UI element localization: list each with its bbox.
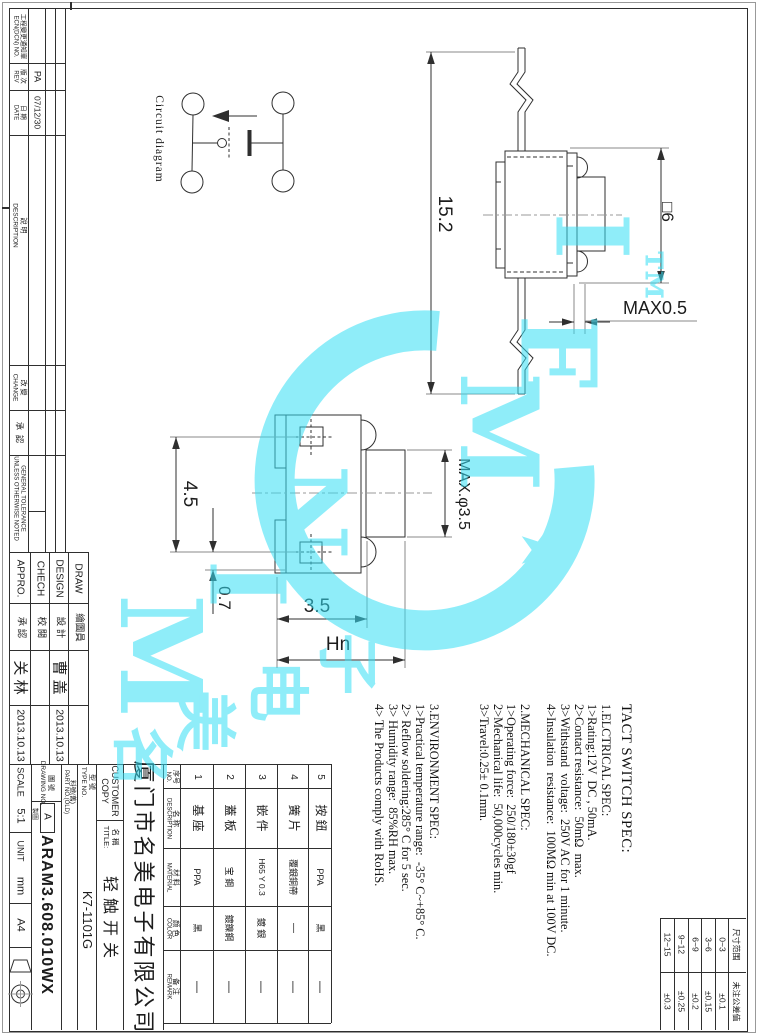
- part-no: 5: [305, 767, 335, 787]
- part-name: 蓋 板: [214, 790, 244, 846]
- dim-edge: 0.7: [214, 575, 234, 621]
- parts-header-name: 名 称 DESCRIPTION: [163, 788, 180, 848]
- spec-line: 4> The Products comply with RoHS.: [371, 704, 385, 1020]
- dim-side-width: □6: [656, 190, 678, 234]
- design-label-cn: 設 計: [49, 602, 68, 652]
- unit-value: mm: [11, 869, 31, 904]
- part-remark: —: [305, 953, 335, 1021]
- chech-label: CHECH: [30, 553, 49, 603]
- description-label: 說 明 DESCRIPTION: [11, 165, 28, 285]
- spec-line: 2.MECHANICAL SPEC:: [517, 704, 531, 1020]
- spec-line: 2> Reflow soldering:285° C for 5 sec.: [399, 704, 413, 1020]
- part-remark: —: [214, 953, 244, 1021]
- part-material: PPA: [182, 850, 212, 904]
- part-remark: —: [182, 953, 212, 1021]
- spec-line: 3.ENVIRONMENT SPEC:: [426, 704, 440, 1020]
- rev-label: 版 次 REV: [11, 64, 28, 90]
- approve-strip-label: 承 認: [11, 411, 28, 455]
- design-date: 2013.10.13: [49, 706, 68, 764]
- tol-value: ±0.2: [689, 976, 700, 1026]
- dim-stem: MAX.φ3.5: [453, 442, 473, 546]
- projection-symbol-icon: [8, 960, 33, 1007]
- dim-side-height: 15.2: [432, 184, 456, 244]
- part-name: 嵌 件: [246, 790, 276, 846]
- sheet-size: A4: [11, 908, 31, 943]
- drawing-sheet: Circuit diagram 15.2 □6 MAX0.5 4.5 0.7 3…: [0, 0, 758, 1034]
- spec-line: 3>Travel:0.25± 0.1mm.: [476, 704, 490, 1020]
- tol-value: ±0.15: [703, 976, 714, 1026]
- general-tolerance-note: GENERAL TOLERANCE UNLESS OTHERWISE NOTED: [11, 452, 28, 544]
- appro-name: 关 林: [11, 653, 30, 703]
- tol-range: 9~12: [676, 919, 687, 969]
- appro-label: APPRO.: [11, 553, 30, 603]
- part-material: H65 Y 0.3: [246, 850, 276, 904]
- spec-line: 1>Rating:12V DC , 50mA.: [585, 704, 599, 1020]
- ecn-label: 工程變更通知單 ECN(DCN) NO.: [11, 10, 28, 62]
- part-no: 3: [246, 767, 276, 787]
- spec-text-block: TACT SWITCH SPEC: 1.ELCTRICAL SPEC: 1>Ra…: [354, 690, 632, 1020]
- appro-label-cn: 承 認: [11, 602, 30, 652]
- part-no: 4: [278, 767, 308, 787]
- draw-label: DRAW: [69, 553, 88, 603]
- title-value: 轻触开关: [97, 855, 121, 985]
- spec-line: 1>Operating force: 250/180±30gf: [504, 704, 518, 1020]
- company-name: 厦门市名美电子有限公司: [125, 770, 161, 1026]
- side-view-graphic: [483, 48, 622, 394]
- part-name: 按 鈕: [305, 790, 335, 846]
- tol-range: 0~3: [716, 919, 727, 969]
- dim-lead-max: MAX0.5: [613, 298, 697, 318]
- part-color: —: [278, 908, 308, 948]
- spec-line: 3>Withstand voltage: 250V AC for 1 minut…: [557, 704, 571, 1020]
- part-color: 黑: [305, 908, 335, 948]
- spec-line: 2>Contact resistance: 50mΩ max.: [571, 704, 585, 1020]
- title-label: 名 稱 TITLE:: [100, 820, 120, 854]
- chech-label-cn: 校 閱: [30, 602, 49, 652]
- tol-range: 3~6: [703, 919, 714, 969]
- dim-body-width: 3.5: [294, 596, 340, 617]
- drawing-no-label: 圖 號 DRAWING NO.: [35, 765, 57, 801]
- tol-range: 6~9: [689, 919, 700, 969]
- scale-label: SCALE: [11, 765, 31, 800]
- parts-header-material: 材 料 MATERIAL: [163, 849, 180, 905]
- parts-header-color: 颜 色 COLOR: [163, 908, 180, 948]
- tol-range: 12~15: [662, 919, 673, 969]
- drawing-no-value: ARAM3.608.010WX: [33, 815, 59, 1015]
- tol-value: ±0.1: [716, 976, 727, 1026]
- part-no: 2: [214, 767, 244, 787]
- parts-header-no: 序号 NO.: [162, 766, 182, 788]
- part-material: PPA: [305, 850, 335, 904]
- part-material: 覆銀銅帶: [278, 850, 308, 904]
- part-remark: —: [246, 953, 276, 1021]
- part-material: 宝 鋼: [214, 850, 244, 904]
- part-name: 基 座: [182, 790, 212, 846]
- dim-total-width: Hn: [315, 634, 361, 656]
- spec-line: 2>Mechanical life: 50,000cycles min.: [490, 704, 504, 1020]
- appro-date: 2013.10.13: [11, 706, 30, 764]
- tol-value-header: 未注公差值: [729, 973, 742, 1029]
- change-label: 改 變 CHANGE: [11, 366, 28, 410]
- tol-range-header: 尺寸范围: [729, 918, 742, 970]
- rev-value: PA: [28, 64, 45, 90]
- design-label: DESIGN: [49, 553, 68, 603]
- tol-value: ±0.3: [662, 976, 673, 1026]
- type-no-label: 型 號 TYPE NO.: [78, 765, 96, 799]
- part-color: 鍍 銀: [246, 908, 276, 948]
- part-color: 鍍鎳鋼: [214, 908, 244, 948]
- part-color: 黑: [182, 908, 212, 948]
- customer-copy-label: CUSTOMER COPY: [99, 765, 121, 817]
- draw-label-cn: 繪圖員: [69, 602, 88, 652]
- spec-line: 1.ELCTRICAL SPEC:: [598, 704, 612, 1020]
- part-no: 1: [182, 767, 212, 787]
- circuit-diagram-graphic: [181, 92, 294, 193]
- part-no-label: 料號(舊) PART NO.(OLD): [61, 766, 77, 818]
- parts-header-remark: 备 注 REMARK: [163, 953, 180, 1021]
- part-remark: —: [278, 953, 308, 1021]
- tol-value: ±0.25: [676, 976, 687, 1026]
- spec-line: 3> Humidity range: 85%RH max.: [385, 704, 399, 1020]
- design-name: 曹 盖: [49, 653, 68, 703]
- dim-pitch: 4.5: [178, 469, 200, 519]
- spec-line: 1>Practical temperature range: -35° C~+8…: [412, 704, 426, 1020]
- circuit-diagram-label: Circuit diagram: [150, 84, 166, 194]
- date-value: 07/12/30: [28, 91, 45, 135]
- spec-line: 4>Insulation resistance: 100MΩ min at 10…: [543, 704, 557, 1020]
- unit-label: UNIT: [11, 834, 31, 869]
- type-no-value: K7-1101G: [78, 860, 96, 980]
- date-label: 日 期 DATE: [11, 91, 28, 135]
- part-name: 簧 片: [278, 790, 308, 846]
- spec-heading: TACT SWITCH SPEC:: [618, 704, 632, 1020]
